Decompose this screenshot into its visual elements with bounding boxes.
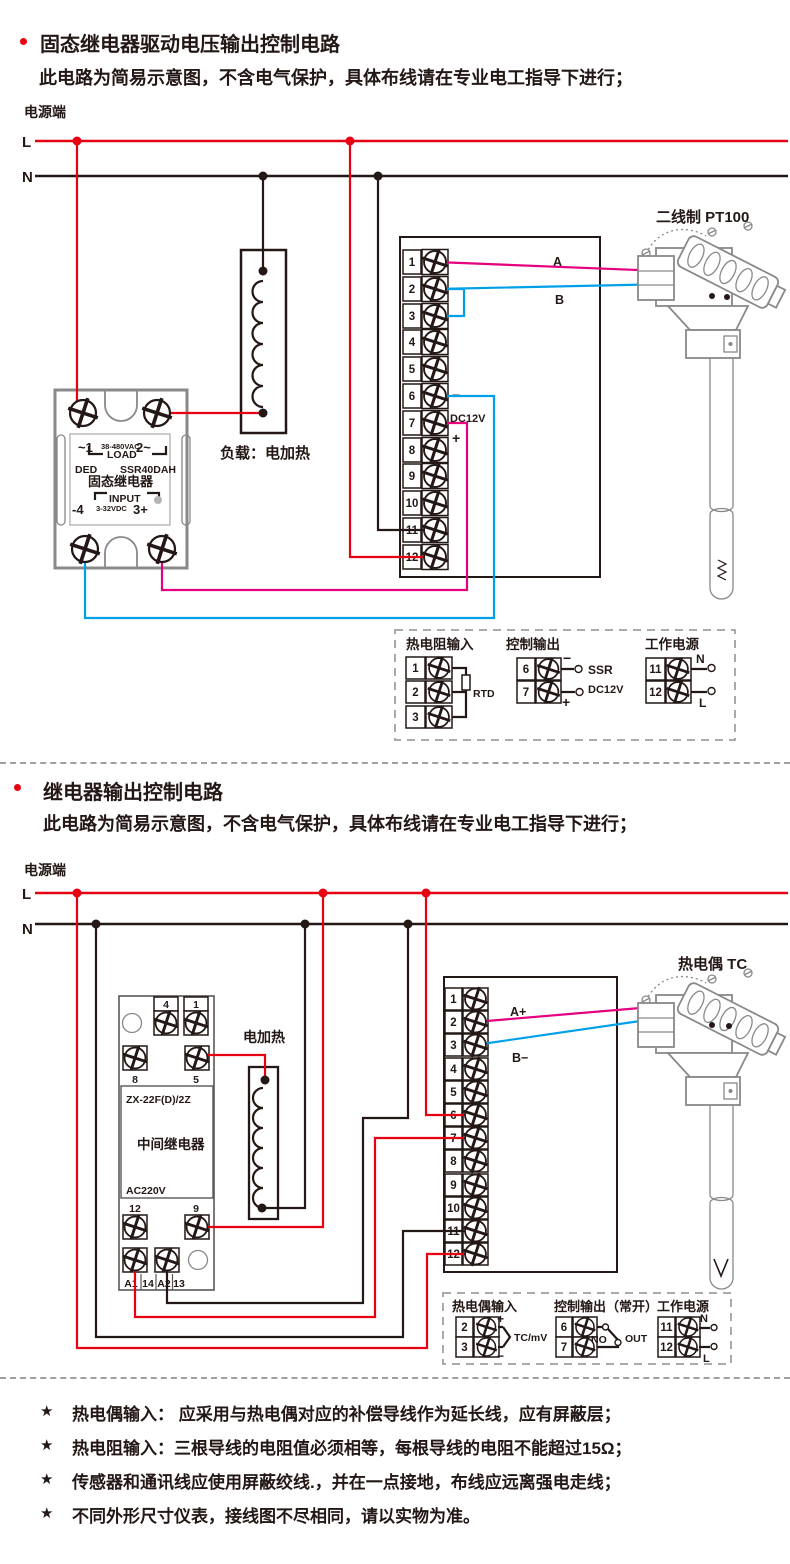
pt100-label: 二线制 PT100 xyxy=(656,208,749,226)
wire-b-label: B xyxy=(555,293,564,307)
svg-text:3: 3 xyxy=(450,1040,456,1052)
note-item: 传感器和通讯线应使用屏蔽绞线.，并在一点接地，布线应远离强电走线； xyxy=(72,1468,621,1493)
ssr-term3: 3+ xyxy=(133,502,148,517)
svg-text:9: 9 xyxy=(450,1180,456,1192)
line-n-label: N xyxy=(22,169,33,186)
relay-term-12: 12 xyxy=(129,1203,141,1215)
circuit2-diagram: 电源端 L N 4 1 8 5 ZX-22F(D)/2Z 中间继电器 AC220… xyxy=(0,850,790,1372)
svg-text:6: 6 xyxy=(409,391,415,403)
svg-text:12: 12 xyxy=(649,687,662,699)
section-divider xyxy=(0,762,790,764)
ssr-term1: ~1 xyxy=(78,440,93,455)
pt100-sensor: 二线制 PT100 xyxy=(638,208,788,599)
load-label: 负载：电加热 xyxy=(220,444,310,462)
circuit1-diagram: 电源端 L N ~1 38-480VAC 2~ LOAD DED SSR40DA… xyxy=(0,96,790,760)
power-label: 电源端 xyxy=(24,862,66,878)
power-rails: 电源端 L N xyxy=(22,104,788,186)
legend-pwr-l: L xyxy=(703,1353,710,1365)
legend-pwr-n: N xyxy=(696,652,705,666)
svg-text:11: 11 xyxy=(660,1322,673,1334)
svg-text:5: 5 xyxy=(409,364,416,376)
relay-voltage: AC220V xyxy=(126,1185,166,1197)
legend-pwr-title: 工作电源 xyxy=(645,636,699,652)
ssr-term4: -4 xyxy=(72,502,84,517)
rtd-element-icon xyxy=(718,560,726,580)
wire-b-label: B− xyxy=(512,1051,528,1065)
probe-tube xyxy=(710,1105,733,1289)
svg-text:5: 5 xyxy=(450,1087,457,1099)
relay-term-a2: A2 xyxy=(157,1278,171,1290)
ssr-led xyxy=(154,496,162,504)
ssr-load-label: LOAD xyxy=(107,449,137,461)
svg-text:1: 1 xyxy=(450,994,457,1006)
relay-name: 中间继电器 xyxy=(137,1136,205,1152)
notes-divider xyxy=(0,1377,790,1379)
ssr-vdc: 3-32VDC xyxy=(96,504,127,513)
rtd-resistor-icon xyxy=(462,675,470,690)
probe-tube xyxy=(710,358,733,599)
svg-text:4: 4 xyxy=(409,337,416,349)
intermediate-relay: 4 1 8 5 ZX-22F(D)/2Z 中间继电器 AC220V 12 9 A… xyxy=(119,996,214,1290)
svg-text:10: 10 xyxy=(406,498,419,510)
svg-text:1: 1 xyxy=(412,663,419,675)
legend-tc-title: 热电偶输入 xyxy=(452,1299,517,1314)
svg-text:8: 8 xyxy=(450,1156,457,1168)
heater-label: 电加热 xyxy=(243,1029,285,1045)
legend-pwr-l: L xyxy=(699,696,706,710)
line-l-label: L xyxy=(22,134,31,151)
legend-box: 热电阻输入 1 2 3 RTD 控制输出 6 7 − SSR DC12V + 工… xyxy=(395,630,735,740)
tc-label: 热电偶 TC xyxy=(678,955,747,973)
relay-term-8: 8 xyxy=(132,1074,138,1086)
svg-text:2: 2 xyxy=(412,687,418,699)
relay-term-1: 1 xyxy=(193,999,199,1011)
section1-subtitle: 此电路为简易示意图，不含电气保护，具体布线请在专业电工指导下进行； xyxy=(39,64,633,90)
ssr-term2: 2~ xyxy=(136,440,151,455)
page: 固态继电器驱动电压输出控制电路 此电路为简易示意图，不含电气保护，具体布线请在专… xyxy=(0,0,790,1564)
note-star-icon: ★ xyxy=(40,1470,53,1488)
svg-text:8: 8 xyxy=(409,445,416,457)
legend-rtd-title: 热电阻输入 xyxy=(406,636,474,652)
svg-text:7: 7 xyxy=(409,418,415,430)
svg-text:6: 6 xyxy=(523,664,529,676)
svg-text:3: 3 xyxy=(409,311,415,323)
relay-model: ZX-22F(D)/2Z xyxy=(126,1094,191,1106)
legend-tc-minus: − xyxy=(497,1349,504,1363)
svg-text:7: 7 xyxy=(561,1342,567,1354)
note-item: 不同外形尺寸仪表，接线图不尽相同，请以实物为准。 xyxy=(72,1502,480,1527)
section1-bullet-icon xyxy=(20,38,27,45)
legend-tc-plus: + xyxy=(497,1312,504,1326)
legend-out-ssr: SSR xyxy=(588,663,613,677)
svg-text:2: 2 xyxy=(450,1017,456,1029)
svg-text:3: 3 xyxy=(461,1342,467,1354)
section2-bullet-icon xyxy=(14,784,21,791)
dc-plus: + xyxy=(452,430,460,446)
svg-text:2: 2 xyxy=(461,1322,467,1334)
legend-pwr-title: 工作电源 xyxy=(657,1299,709,1314)
relay-term-9: 9 xyxy=(193,1203,199,1215)
relay-term-13: 13 xyxy=(173,1278,185,1290)
note-star-icon: ★ xyxy=(40,1504,53,1522)
section2-title: 继电器输出控制电路 xyxy=(43,776,223,805)
tc-junction-icon xyxy=(714,1259,728,1276)
note-item: 热电偶输入： 应采用与热电偶对应的补偿导线作为延长线，应有屏蔽层； xyxy=(72,1400,621,1425)
svg-text:11: 11 xyxy=(649,664,662,676)
note-star-icon: ★ xyxy=(40,1402,53,1420)
legend-pwr-n: N xyxy=(700,1313,708,1325)
legend-out-minus: − xyxy=(563,650,571,666)
svg-text:1: 1 xyxy=(409,257,416,269)
svg-text:10: 10 xyxy=(447,1203,460,1215)
legend-out-title: 控制输出 xyxy=(506,636,560,652)
section2-subtitle: 此电路为简易示意图，不含电气保护，具体布线请在专业电工指导下进行； xyxy=(43,810,637,836)
heater-load: 负载：电加热 xyxy=(220,250,310,462)
svg-text:2: 2 xyxy=(409,284,415,296)
svg-text:9: 9 xyxy=(409,471,415,483)
relay-term-5: 5 xyxy=(193,1074,199,1086)
relay-term-14: 14 xyxy=(142,1278,154,1290)
legend-box: 热电偶输入 2 3 + − TC/mV 控制输出（常开） 6 7 NO OUT … xyxy=(443,1293,731,1365)
svg-text:3: 3 xyxy=(412,712,418,724)
legend-out-dc: DC12V xyxy=(588,684,624,696)
line-l-label: L xyxy=(22,886,31,903)
legend-out-plus: + xyxy=(562,694,570,710)
legend-out-title: 控制输出（常开） xyxy=(554,1299,658,1314)
svg-text:4: 4 xyxy=(450,1064,457,1076)
legend-out-out: OUT xyxy=(625,1333,648,1345)
power-label: 电源端 xyxy=(24,104,66,120)
legend-rtd-label: RTD xyxy=(473,688,495,700)
svg-text:7: 7 xyxy=(523,687,529,699)
power-rails: 电源端 L N xyxy=(22,862,788,938)
legend-tc-label: TC/mV xyxy=(514,1332,547,1344)
thermocouple-sensor: 热电偶 TC xyxy=(638,955,788,1289)
note-item: 热电阻输入：三根导线的电阻值必须相等，每根导线的电阻不能超过15Ω； xyxy=(72,1434,632,1459)
line-n-label: N xyxy=(22,921,33,938)
svg-text:6: 6 xyxy=(561,1322,567,1334)
relay-term-4: 4 xyxy=(163,999,169,1011)
section1-title: 固态继电器驱动电压输出控制电路 xyxy=(40,28,340,57)
svg-text:12: 12 xyxy=(660,1342,673,1354)
note-star-icon: ★ xyxy=(40,1436,53,1454)
ssr-name: 固态继电器 xyxy=(88,474,154,489)
